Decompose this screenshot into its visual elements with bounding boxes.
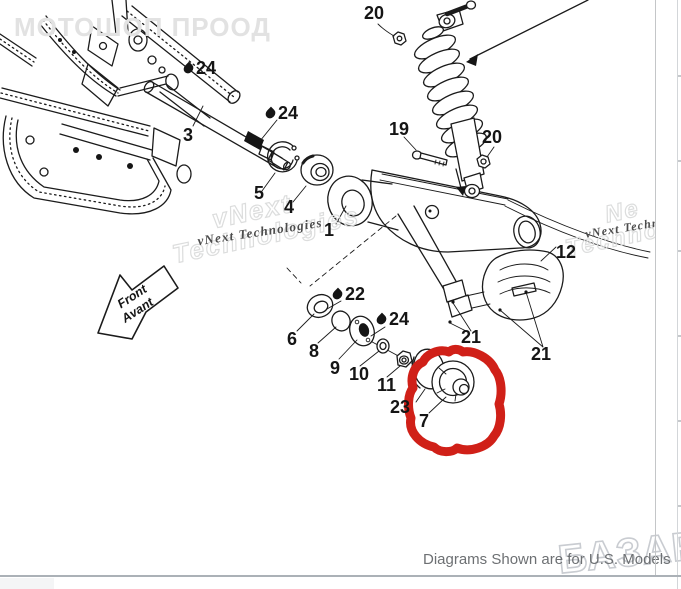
- callout-8: 8: [309, 341, 319, 361]
- front-direction-arrow: Front Avant: [98, 266, 178, 339]
- part-number: 21: [531, 344, 551, 364]
- callout-24b: 24: [266, 103, 298, 123]
- callout-7: 7: [419, 411, 429, 431]
- panel-border-right: [655, 0, 656, 577]
- callout-3: 3: [183, 125, 193, 145]
- oil-droplet-icon: [375, 312, 389, 326]
- parts-diagram-page: МОТОШОП ПРООД vNext Technologies Ne Tech…: [0, 0, 681, 589]
- part-number: 9: [330, 358, 340, 378]
- part-number: 3: [183, 125, 193, 145]
- oil-droplet-icon: [331, 287, 345, 301]
- callout-22: 22: [333, 284, 365, 304]
- part-number: 22: [345, 284, 365, 304]
- page-edge-border: [677, 0, 678, 589]
- part-number: 21: [461, 327, 481, 347]
- part-number: 24: [196, 58, 216, 78]
- callout-10: 10: [349, 364, 369, 384]
- callout-4: 4: [284, 197, 294, 217]
- part-number: 1: [324, 220, 334, 240]
- seller-watermark: МОТОШОП ПРООД: [14, 12, 271, 43]
- corner-strip: [0, 578, 54, 589]
- callout-21a: 21: [461, 327, 481, 347]
- part-number: 11: [377, 375, 396, 395]
- diagram-caption: Diagrams Shown are for U.S. Models: [423, 551, 671, 568]
- callout-11: 11: [377, 375, 396, 395]
- callout-5: 5: [254, 183, 264, 203]
- callout-24a: 24: [184, 58, 216, 78]
- part-number: 20: [482, 127, 502, 147]
- diagram-panel: МОТОШОП ПРООД vNext Technologies Ne Tech…: [0, 0, 656, 577]
- part-number: 24: [389, 309, 409, 329]
- panel-border-bottom: [0, 575, 681, 577]
- callout-12: 12: [556, 242, 576, 262]
- part-number: 4: [284, 197, 294, 217]
- part-number: 7: [419, 411, 429, 431]
- part-3-pivot-shaft: [142, 80, 291, 171]
- part-number: 12: [556, 242, 576, 262]
- part-number: 23: [390, 397, 410, 417]
- part-number: 19: [389, 119, 409, 139]
- callout-24c: 24: [377, 309, 409, 329]
- callout-20a: 20: [364, 3, 384, 23]
- part-number: 10: [349, 364, 369, 384]
- callout-1: 1: [324, 220, 334, 240]
- callout-6: 6: [287, 329, 297, 349]
- callout-20b: 20: [482, 127, 502, 147]
- shock-absorber: [378, 0, 588, 198]
- part-number: 20: [364, 3, 384, 23]
- part-number: 8: [309, 341, 319, 361]
- part-7-hub-cap: [432, 361, 474, 403]
- callout-19: 19: [389, 119, 409, 139]
- part-number: 6: [287, 329, 297, 349]
- callout-23: 23: [390, 397, 410, 417]
- oil-droplet-icon: [182, 61, 196, 75]
- parts-diagram-svg: Front Avant: [0, 0, 656, 577]
- part-number: 5: [254, 183, 264, 203]
- callout-21b: 21: [531, 344, 551, 364]
- part-number: 24: [278, 103, 298, 123]
- callout-9: 9: [330, 358, 340, 378]
- oil-droplet-icon: [264, 106, 278, 120]
